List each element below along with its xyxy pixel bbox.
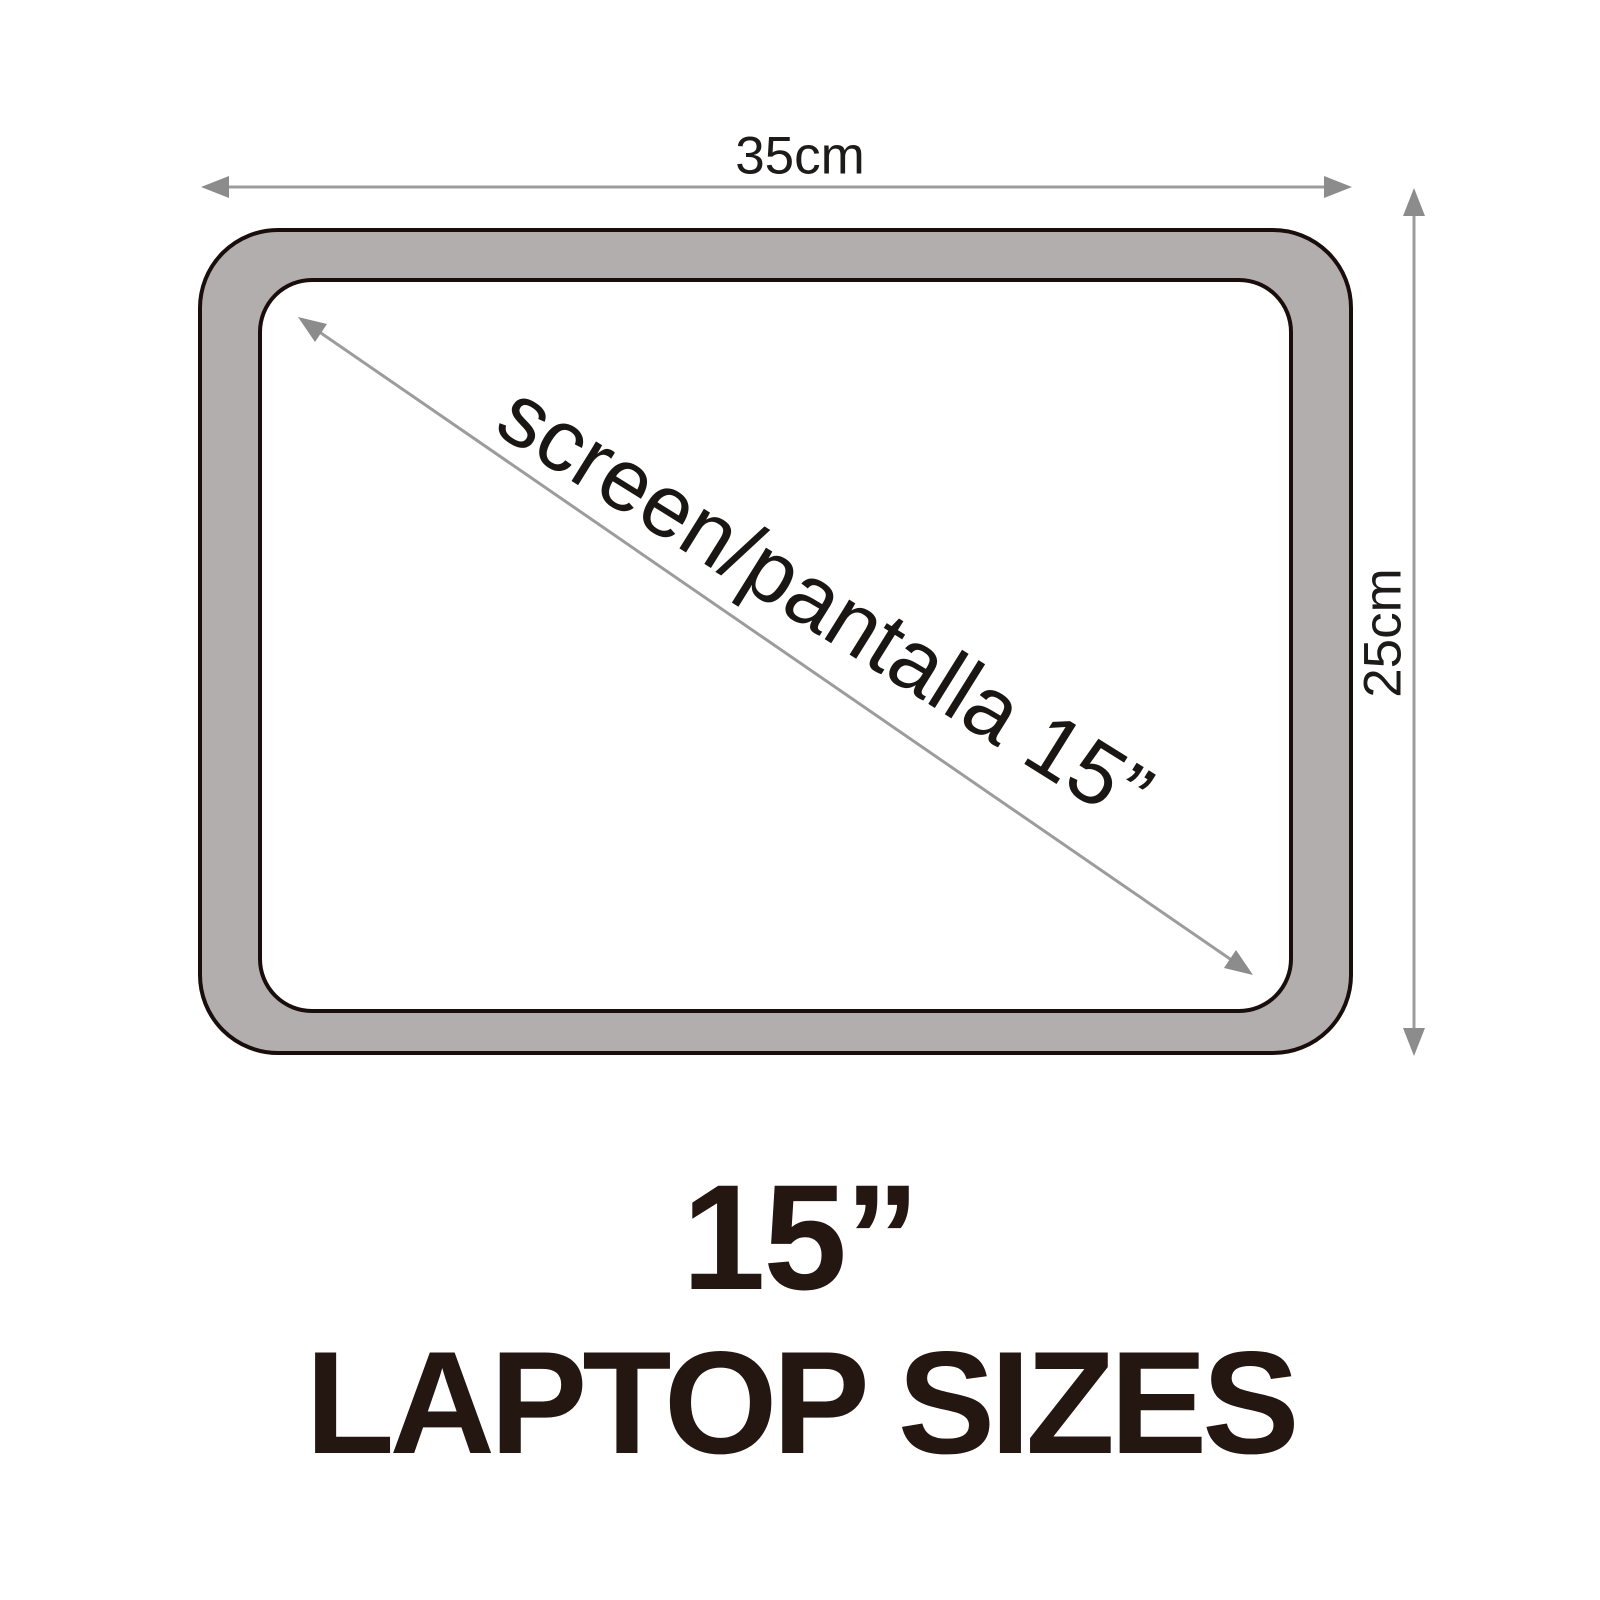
height-arrow-head-top-icon bbox=[1403, 188, 1425, 216]
height-arrow-head-bottom-icon bbox=[1403, 1028, 1425, 1056]
laptop-screen bbox=[258, 278, 1293, 1013]
height-dimension-label: 25cm bbox=[1357, 568, 1410, 698]
width-dimension-label: 35cm bbox=[735, 130, 865, 183]
width-arrow-head-right-icon bbox=[1324, 176, 1352, 198]
title-size-line: 15” bbox=[0, 1162, 1600, 1312]
diagram-canvas: 35cm 25cm screen/pantalla 15” 15” LAPTOP… bbox=[0, 0, 1600, 1600]
title-text-line: LAPTOP SIZES bbox=[0, 1330, 1600, 1476]
laptop-body bbox=[198, 228, 1353, 1055]
width-arrow-head-left-icon bbox=[201, 176, 229, 198]
